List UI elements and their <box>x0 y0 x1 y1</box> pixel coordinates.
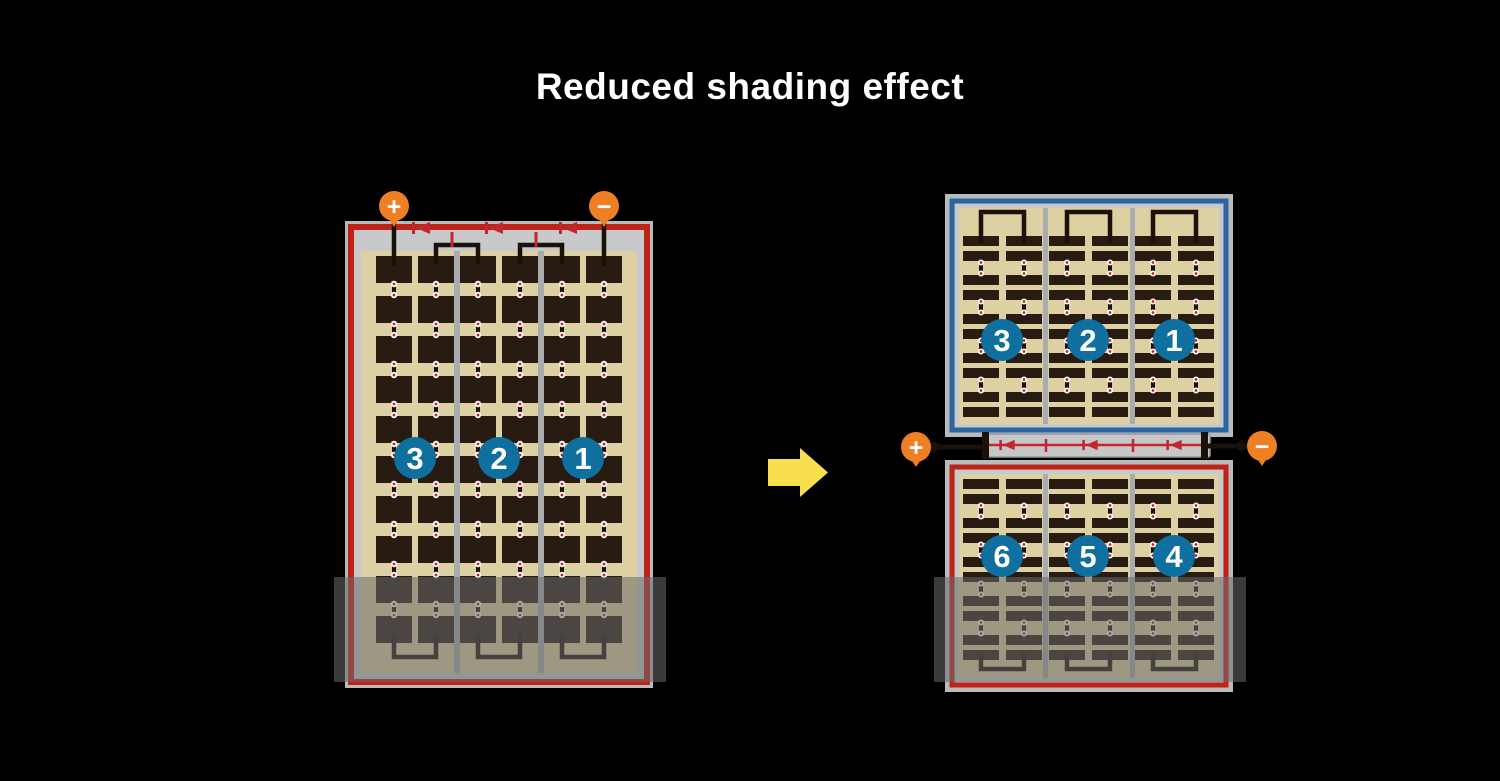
solder-dot-core <box>1023 300 1026 303</box>
solder-dot-core <box>435 323 438 326</box>
group-separator <box>1130 208 1135 424</box>
solder-dot-core <box>603 483 606 486</box>
solar-cell-strip <box>1092 407 1128 417</box>
solder-dot-core <box>603 294 606 297</box>
solder-dot-core <box>1023 350 1026 353</box>
solder-dot-core <box>1195 515 1198 518</box>
solder-dot-core <box>980 311 983 314</box>
solder-dot-core <box>1023 389 1026 392</box>
solder-dot-core <box>435 574 438 577</box>
solder-dot-core <box>1109 389 1112 392</box>
solder-dot-core <box>561 334 564 337</box>
solder-dot-core <box>477 534 480 537</box>
solder-dot-core <box>1023 543 1026 546</box>
solder-dot-core <box>1023 261 1026 264</box>
solar-cell <box>586 376 622 403</box>
left-panel-module: 3 2 1 + − <box>334 191 666 688</box>
solder-dot-core <box>1066 350 1069 353</box>
solder-dot-core <box>603 534 606 537</box>
solar-cell <box>502 376 538 403</box>
solder-dot-core <box>980 261 983 264</box>
solder-dot-core <box>1152 543 1155 546</box>
solder-dot-core <box>435 374 438 377</box>
solder-dot-core <box>393 483 396 486</box>
group-separator <box>1043 208 1048 424</box>
solder-dot-core <box>603 574 606 577</box>
solar-cell-strip <box>1178 479 1214 489</box>
module-number: 5 <box>1079 539 1096 574</box>
diode-icon <box>999 440 1002 450</box>
solder-dot-core <box>603 403 606 406</box>
solder-dot-core <box>477 523 480 526</box>
minus-symbol: − <box>1255 433 1270 461</box>
solar-cell <box>544 296 580 323</box>
solder-dot-core <box>435 523 438 526</box>
solar-cell <box>418 296 454 323</box>
module-number: 6 <box>993 539 1010 574</box>
solder-dot-core <box>980 378 983 381</box>
solar-cell <box>544 496 580 523</box>
solder-dot-core <box>393 323 396 326</box>
solder-dot-core <box>519 403 522 406</box>
solder-dot-core <box>519 283 522 286</box>
solar-cell <box>460 296 496 323</box>
module-number: 2 <box>490 441 507 476</box>
shading-overlay <box>334 577 666 682</box>
solar-cell <box>418 336 454 363</box>
module-number: 3 <box>406 441 423 476</box>
solder-dot-core <box>519 443 522 446</box>
solar-cell <box>544 376 580 403</box>
solar-cell-strip <box>1006 479 1042 489</box>
solder-dot-core <box>477 403 480 406</box>
solder-dot-core <box>1109 261 1112 264</box>
solder-dot-core <box>477 563 480 566</box>
solder-dot-core <box>603 323 606 326</box>
junction-stub <box>1201 432 1208 459</box>
solder-dot-core <box>1066 311 1069 314</box>
solder-dot-core <box>519 523 522 526</box>
solder-dot-core <box>435 494 438 497</box>
solder-dot-core <box>519 563 522 566</box>
solder-dot-core <box>519 574 522 577</box>
right-panel-bottom-half: 6 5 4 <box>934 460 1246 692</box>
solder-dot-core <box>603 414 606 417</box>
solder-dot-core <box>435 363 438 366</box>
solder-dot-core <box>980 272 983 275</box>
solar-cell <box>586 296 622 323</box>
solder-dot-core <box>477 494 480 497</box>
solder-dot-core <box>477 283 480 286</box>
solar-cell-strip <box>1178 407 1214 417</box>
diode-icon <box>559 222 562 234</box>
solder-dot-core <box>603 523 606 526</box>
solder-dot-core <box>1066 515 1069 518</box>
solder-dot-core <box>477 363 480 366</box>
solder-dot-core <box>519 494 522 497</box>
shading-diagram: 3 2 1 + − <box>0 0 1500 781</box>
solder-dot-core <box>603 443 606 446</box>
solder-dot-core <box>561 294 564 297</box>
solder-dot-core <box>561 563 564 566</box>
solder-dot-core <box>1109 339 1112 342</box>
module-number: 1 <box>574 441 591 476</box>
solder-dot-core <box>519 414 522 417</box>
module-badge-1: 1 <box>1153 319 1195 361</box>
solder-dot-core <box>1109 554 1112 557</box>
solder-dot-core <box>1152 378 1155 381</box>
solder-dot-core <box>561 374 564 377</box>
module-badge-2: 2 <box>478 437 520 479</box>
solder-dot-core <box>1023 378 1026 381</box>
solder-dot-core <box>1152 504 1155 507</box>
solder-dot-core <box>1023 272 1026 275</box>
solder-dot-core <box>393 443 396 446</box>
solder-dot-core <box>519 363 522 366</box>
diode-icon <box>1082 440 1085 450</box>
solder-dot-core <box>561 414 564 417</box>
solder-dot-core <box>1152 261 1155 264</box>
solder-dot-core <box>980 504 983 507</box>
solar-cell <box>586 536 622 563</box>
solder-dot-core <box>435 534 438 537</box>
positive-terminal-icon: + <box>901 432 931 467</box>
solder-dot-core <box>561 494 564 497</box>
solder-dot-core <box>1066 272 1069 275</box>
solder-dot-core <box>477 574 480 577</box>
solder-dot-core <box>561 523 564 526</box>
solar-cell <box>376 376 412 403</box>
solder-dot-core <box>1066 300 1069 303</box>
diagram-canvas: Reduced shading effect 3 2 <box>0 0 1500 781</box>
solar-cell <box>376 496 412 523</box>
solder-dot-core <box>603 563 606 566</box>
solder-dot-core <box>393 414 396 417</box>
solar-cell-strip <box>1006 407 1042 417</box>
solder-dot-core <box>1195 350 1198 353</box>
wire-nub <box>1234 440 1248 452</box>
solder-dot-core <box>519 294 522 297</box>
solder-dot-core <box>477 334 480 337</box>
module-number: 1 <box>1165 323 1182 358</box>
solder-dot-core <box>393 294 396 297</box>
solder-dot-core <box>603 363 606 366</box>
solar-cell <box>586 496 622 523</box>
solder-dot-core <box>1195 300 1198 303</box>
solder-dot-core <box>1195 311 1198 314</box>
solar-cell-strip <box>1049 479 1085 489</box>
solder-dot-core <box>561 534 564 537</box>
solder-dot-core <box>1109 378 1112 381</box>
solder-dot-core <box>561 574 564 577</box>
solder-dot-core <box>603 334 606 337</box>
solder-dot-core <box>393 494 396 497</box>
solder-dot-core <box>435 443 438 446</box>
solder-dot-core <box>1195 378 1198 381</box>
solar-cell <box>502 536 538 563</box>
solder-dot-core <box>1023 311 1026 314</box>
solar-cell <box>418 376 454 403</box>
module-number: 2 <box>1079 323 1096 358</box>
solder-dot-core <box>603 283 606 286</box>
solder-dot-core <box>477 294 480 297</box>
solder-dot-core <box>1066 261 1069 264</box>
solar-cell <box>460 376 496 403</box>
solar-cell <box>418 496 454 523</box>
solder-dot-core <box>603 494 606 497</box>
solder-dot-core <box>980 389 983 392</box>
diode-icon <box>1166 440 1169 450</box>
solar-cell <box>544 336 580 363</box>
module-badge-3: 3 <box>981 319 1023 361</box>
minus-symbol: − <box>597 193 612 221</box>
solder-dot-core <box>477 443 480 446</box>
solder-dot-core <box>603 374 606 377</box>
solar-cell <box>460 536 496 563</box>
module-badge-1: 1 <box>562 437 604 479</box>
diode-icon <box>412 222 415 234</box>
solder-dot-core <box>1152 389 1155 392</box>
solar-cell-strip <box>963 407 999 417</box>
module-badge-5: 5 <box>1067 535 1109 577</box>
module-badge-2: 2 <box>1067 319 1109 361</box>
negative-terminal-icon: − <box>1247 431 1277 466</box>
solder-dot-core <box>980 300 983 303</box>
solder-dot-core <box>393 403 396 406</box>
solar-cell <box>376 336 412 363</box>
solder-dot-core <box>435 403 438 406</box>
solder-dot-core <box>1066 389 1069 392</box>
solder-dot-core <box>519 323 522 326</box>
solder-dot-core <box>1109 543 1112 546</box>
solder-dot-core <box>393 534 396 537</box>
module-number: 4 <box>1165 539 1183 574</box>
solder-dot-core <box>1066 504 1069 507</box>
solder-dot-core <box>435 294 438 297</box>
solder-dot-core <box>1066 543 1069 546</box>
solder-dot-core <box>393 374 396 377</box>
solder-dot-core <box>561 443 564 446</box>
solar-cell-strip <box>1049 407 1085 417</box>
solder-dot-core <box>1109 504 1112 507</box>
solder-dot-core <box>1023 554 1026 557</box>
solder-dot-core <box>1152 272 1155 275</box>
solder-dot-core <box>477 374 480 377</box>
solar-cell <box>586 336 622 363</box>
module-badge-4: 4 <box>1153 535 1195 577</box>
solder-dot-core <box>980 350 983 353</box>
solder-dot-core <box>435 414 438 417</box>
solder-dot-core <box>393 363 396 366</box>
solder-dot-core <box>980 515 983 518</box>
solder-dot-core <box>519 334 522 337</box>
solder-dot-core <box>1066 378 1069 381</box>
solder-dot-core <box>1023 504 1026 507</box>
solder-dot-core <box>435 483 438 486</box>
solder-dot-core <box>1152 300 1155 303</box>
solder-dot-core <box>980 543 983 546</box>
solar-cell <box>376 536 412 563</box>
solder-dot-core <box>561 363 564 366</box>
solder-dot-core <box>1152 350 1155 353</box>
solder-dot-core <box>393 334 396 337</box>
solder-dot-core <box>1195 389 1198 392</box>
solder-dot-core <box>561 323 564 326</box>
right-panel-top-half: 3 2 1 <box>945 194 1233 437</box>
solder-dot-core <box>561 483 564 486</box>
solar-cell-strip <box>1092 479 1128 489</box>
solder-dot-core <box>561 283 564 286</box>
solder-dot-core <box>1109 515 1112 518</box>
solar-cell <box>502 296 538 323</box>
solder-dot-core <box>1109 272 1112 275</box>
solder-dot-core <box>1023 515 1026 518</box>
solder-dot-core <box>477 483 480 486</box>
solder-dot-core <box>519 374 522 377</box>
diode-icon <box>485 222 488 234</box>
solder-dot-core <box>519 483 522 486</box>
solder-dot-core <box>1195 261 1198 264</box>
solder-dot-core <box>1152 515 1155 518</box>
solder-dot-core <box>435 283 438 286</box>
junction-stub <box>982 432 989 459</box>
shading-overlay <box>934 577 1246 682</box>
solder-dot-core <box>435 334 438 337</box>
solder-dot-core <box>1109 311 1112 314</box>
solder-dot-core <box>561 403 564 406</box>
solder-dot-core <box>1152 311 1155 314</box>
solar-cell-strip <box>1135 479 1171 489</box>
solder-dot-core <box>1195 504 1198 507</box>
solar-cell <box>502 496 538 523</box>
solar-cell-strip <box>1135 407 1171 417</box>
solar-cell <box>502 336 538 363</box>
arrow-right-icon <box>768 448 828 497</box>
module-number: 3 <box>993 323 1010 358</box>
solder-dot-core <box>1109 300 1112 303</box>
solder-dot-core <box>393 563 396 566</box>
solder-dot-core <box>1109 350 1112 353</box>
solar-cell <box>418 536 454 563</box>
plus-symbol: + <box>909 434 924 462</box>
solder-dot-core <box>393 523 396 526</box>
solder-dot-core <box>393 283 396 286</box>
solder-dot-core <box>1195 554 1198 557</box>
solder-dot-core <box>393 574 396 577</box>
solder-dot-core <box>1195 339 1198 342</box>
solar-cell <box>376 296 412 323</box>
solar-cell <box>544 536 580 563</box>
solder-dot-core <box>477 414 480 417</box>
solder-dot-core <box>477 323 480 326</box>
solder-dot-core <box>519 534 522 537</box>
solar-cell <box>460 496 496 523</box>
plus-symbol: + <box>387 193 402 221</box>
solar-cell-strip <box>963 479 999 489</box>
solder-dot-core <box>1195 543 1198 546</box>
module-badge-3: 3 <box>394 437 436 479</box>
solder-dot-core <box>1023 339 1026 342</box>
solder-dot-core <box>435 563 438 566</box>
solar-cell <box>460 336 496 363</box>
module-badge-6: 6 <box>981 535 1023 577</box>
solder-dot-core <box>1195 272 1198 275</box>
